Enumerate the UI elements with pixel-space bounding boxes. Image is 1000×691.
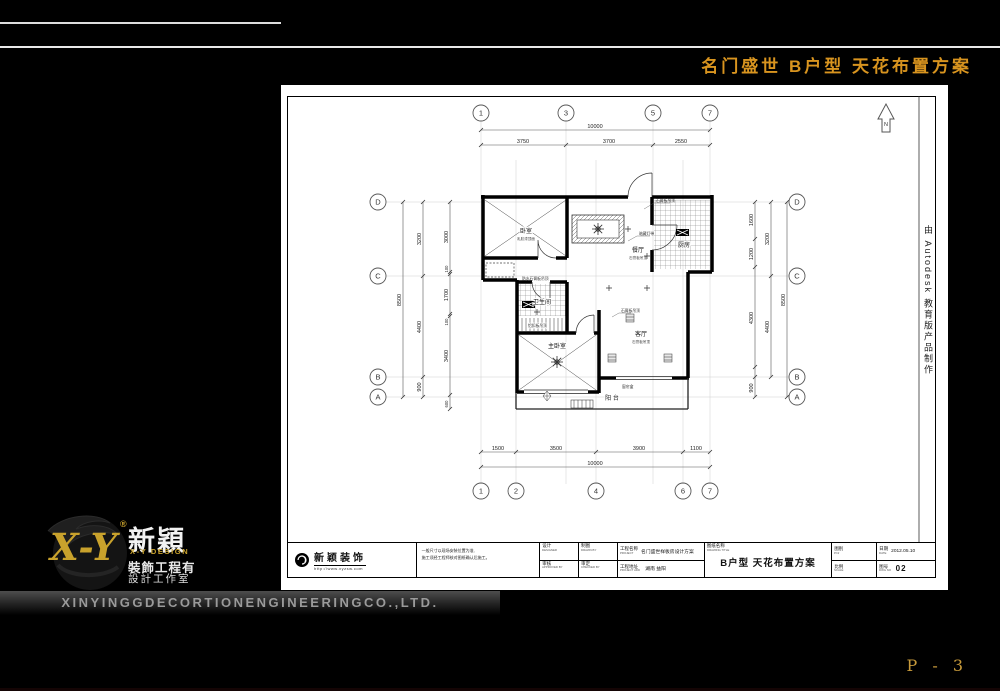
label-dining-note: 石膏板吊顶: [629, 255, 647, 260]
scale-label-en: SCALE: [834, 570, 843, 573]
floor-plan-canvas: 10000 3750 3700 2550 1500 3500 3900 1100…: [281, 85, 948, 590]
dim-bottom-1: 3500: [550, 446, 562, 452]
annotation-2: 防水石膏板吊顶: [522, 276, 549, 281]
grid-left-D: D: [375, 198, 381, 207]
dim-bottom-total: 10000: [587, 461, 602, 467]
titleblock-notes-cell: 一般尺寸以现场安装位置为准, 施工须经工程师核对图纸确认后施工。: [417, 543, 541, 577]
grid-bot-1: 1: [479, 487, 483, 496]
annotation-1: 暗藏灯带: [639, 231, 654, 236]
label-bedroom-note: 乳胶漆顶面: [517, 236, 535, 241]
label-living-note: 石膏板吊顶: [632, 339, 650, 344]
annotation-4: 窗帘盒: [622, 384, 634, 389]
titleblock-url: http://www.xyzsw.com: [314, 566, 366, 571]
grid-top-3: 3: [564, 109, 568, 118]
dim-right-outer: 8500: [781, 294, 787, 306]
label-living: 客厅: [635, 330, 647, 338]
dim-left-inner-3: 100: [444, 318, 449, 326]
titleblock-date-no-cell: 日期DATE 2012.05.10 图号DWG NO 02: [877, 543, 935, 577]
dimension-ticks: [401, 128, 789, 469]
field-check-en: CHECKED BY: [581, 566, 600, 569]
brand-logo-block: X-Y ® 新穎 X-Y DESIGN 裝飾工程有 設計工作室: [28, 503, 273, 591]
dimension-labels: 10000 3750 3700 2550 1500 3500 3900 1100…: [397, 124, 787, 467]
dim-right-mid-0: 3200: [765, 233, 771, 245]
north-label: N: [884, 122, 888, 128]
project-label-en: PROJECT: [620, 552, 636, 555]
dim-left-inner-0: 3000: [444, 231, 450, 243]
field-draw-en: DRAWN BY: [581, 549, 596, 552]
grid-top-1: 1: [479, 109, 483, 118]
closet-dashed-box: [486, 263, 514, 277]
grid-right-A: A: [794, 393, 799, 402]
label-dining: 餐厅: [632, 246, 644, 254]
dim-left-mid-0: 3200: [417, 233, 423, 245]
titleblock-signoff-cell: 设计DESIGNER 审核APPROVED BY 制图DRAWN BY 审定CH…: [540, 543, 618, 577]
address-label-en: PROJECT ADD: [620, 570, 640, 573]
project-name: 名门盛世样板房设计方案: [641, 548, 694, 555]
field-design-en: DESIGNER: [542, 549, 557, 552]
dim-top-1: 3700: [603, 139, 615, 145]
dwgno-value: 02: [896, 564, 907, 573]
drawing-title-label-en: DRAWING TITLE: [707, 549, 729, 552]
category-label-en: P.Nr: [834, 552, 842, 555]
label-bath: 卫生间: [533, 298, 551, 306]
dim-bottom-2: 3900: [633, 446, 645, 452]
top-rule-full: [0, 46, 1000, 48]
titleblock-drawing-title-cell: 图纸名称DRAWING TITLE B户型 天花布置方案: [705, 543, 833, 577]
dim-left-mid-1: 4400: [417, 321, 423, 333]
grid-bubbles: [370, 105, 805, 499]
balcony-plant-icon: [543, 391, 551, 401]
titleblock-logo-cell: 新颖装饰 http://www.xyzsw.com: [288, 543, 417, 577]
grid-bot-4: 4: [594, 487, 598, 496]
brand-line-2: 設計工作室: [128, 571, 191, 586]
north-arrow-icon: N: [878, 104, 894, 132]
dim-right-inner-1: 1200: [749, 248, 755, 260]
registered-mark: ®: [120, 519, 127, 529]
dim-right-inner-2: 4300: [749, 312, 755, 324]
dim-right-mid-1: 4400: [765, 321, 771, 333]
drawing-sheet: 10000 3750 3700 2550 1500 3500 3900 1100…: [281, 85, 948, 590]
date-label-en: DATE: [879, 552, 887, 555]
balcony-outline: [516, 377, 688, 409]
dim-left-outer: 8500: [397, 294, 403, 306]
page-number: P - 3: [906, 656, 968, 675]
label-master: 主卧室: [548, 342, 566, 350]
page-title: 名门盛世 B户型 天花布置方案: [701, 52, 972, 77]
brand-name-en: X-Y DESIGN: [130, 547, 189, 556]
dim-top-total: 10000: [587, 124, 602, 130]
label-kitchen: 厨房: [678, 241, 690, 249]
grid-top-5: 5: [651, 109, 655, 118]
dim-bottom-3: 1100: [690, 446, 702, 452]
grid-right-B: B: [794, 373, 799, 382]
dim-right-inner-3: 900: [749, 383, 755, 392]
annotation-0: 石膏板吊顶: [656, 198, 675, 203]
dragon-logo-icon: [294, 552, 310, 568]
titleblock-project-cell: 工程名称PROJECT 名门盛世样板房设计方案 工程地址PROJECT ADD …: [618, 543, 705, 577]
grid-top-7: 7: [708, 109, 712, 118]
titleblock-cat-scale-cell: 图别P.Nr 比例SCALE: [832, 543, 877, 577]
grid-bot-7: 7: [708, 487, 712, 496]
dimension-lines: [403, 130, 787, 467]
note-line-1: 一般尺寸以现场安装位置为准,: [422, 547, 535, 554]
dim-top-0: 3750: [517, 139, 529, 145]
grid-left-B: B: [375, 373, 380, 382]
brand-xy-monogram: X-Y: [50, 525, 118, 569]
grid-bot-2: 2: [514, 487, 518, 496]
dim-top-2: 2550: [675, 139, 687, 145]
dim-left-inner-4: 3400: [444, 350, 450, 362]
titleblock-company-name: 新颖装饰: [314, 549, 366, 566]
bedroom-cross: [485, 200, 566, 256]
axis-grid-lines: [386, 121, 789, 484]
drawing-title: B户型 天花布置方案: [705, 555, 832, 569]
label-bedroom: 卧室: [520, 227, 532, 235]
vent-icons: [608, 314, 672, 362]
dim-left-mid-2: 900: [417, 382, 423, 391]
grid-right-D: D: [794, 198, 800, 207]
grid-right-C: C: [794, 272, 800, 281]
annotation-3: 石膏板吊顶: [621, 308, 640, 313]
project-address: 湖南 益阳: [645, 565, 666, 572]
grid-bubble-labels: 1 3 5 7 1 2 4 6 7 D C B A D C B A: [375, 109, 800, 496]
dim-bottom-0: 1500: [492, 446, 504, 452]
grid-bot-6: 6: [681, 487, 685, 496]
dim-right-inner-0: 1600: [749, 214, 755, 226]
company-name-strip: XINYINGGDECORTIONENGINEERINGCO.,LTD.: [0, 591, 500, 615]
dim-left-inner-5: 600: [444, 400, 449, 408]
dim-left-inner-2: 1700: [444, 289, 450, 301]
master-lamp-icon: [551, 356, 563, 368]
grid-left-A: A: [375, 393, 380, 402]
dwgno-label-en: DWG NO: [879, 570, 891, 573]
dim-left-inner-1: 100: [444, 265, 449, 273]
annotation-5: 铝扣板吊顶: [528, 323, 547, 328]
note-line-2: 施工须经工程师核对图纸确认后施工。: [422, 554, 535, 561]
grid-left-C: C: [375, 272, 381, 281]
date-value: 2012.05.10: [891, 549, 915, 554]
top-rule-left: [0, 22, 281, 24]
autodesk-edu-note: 由 Autodesk 教育版产品制作: [922, 225, 935, 525]
title-block: 新颖装饰 http://www.xyzsw.com 一般尺寸以现场安装位置为准,…: [287, 542, 936, 578]
label-balcony: 阳 台: [605, 394, 619, 402]
field-approve-en: APPROVED BY: [542, 566, 563, 569]
